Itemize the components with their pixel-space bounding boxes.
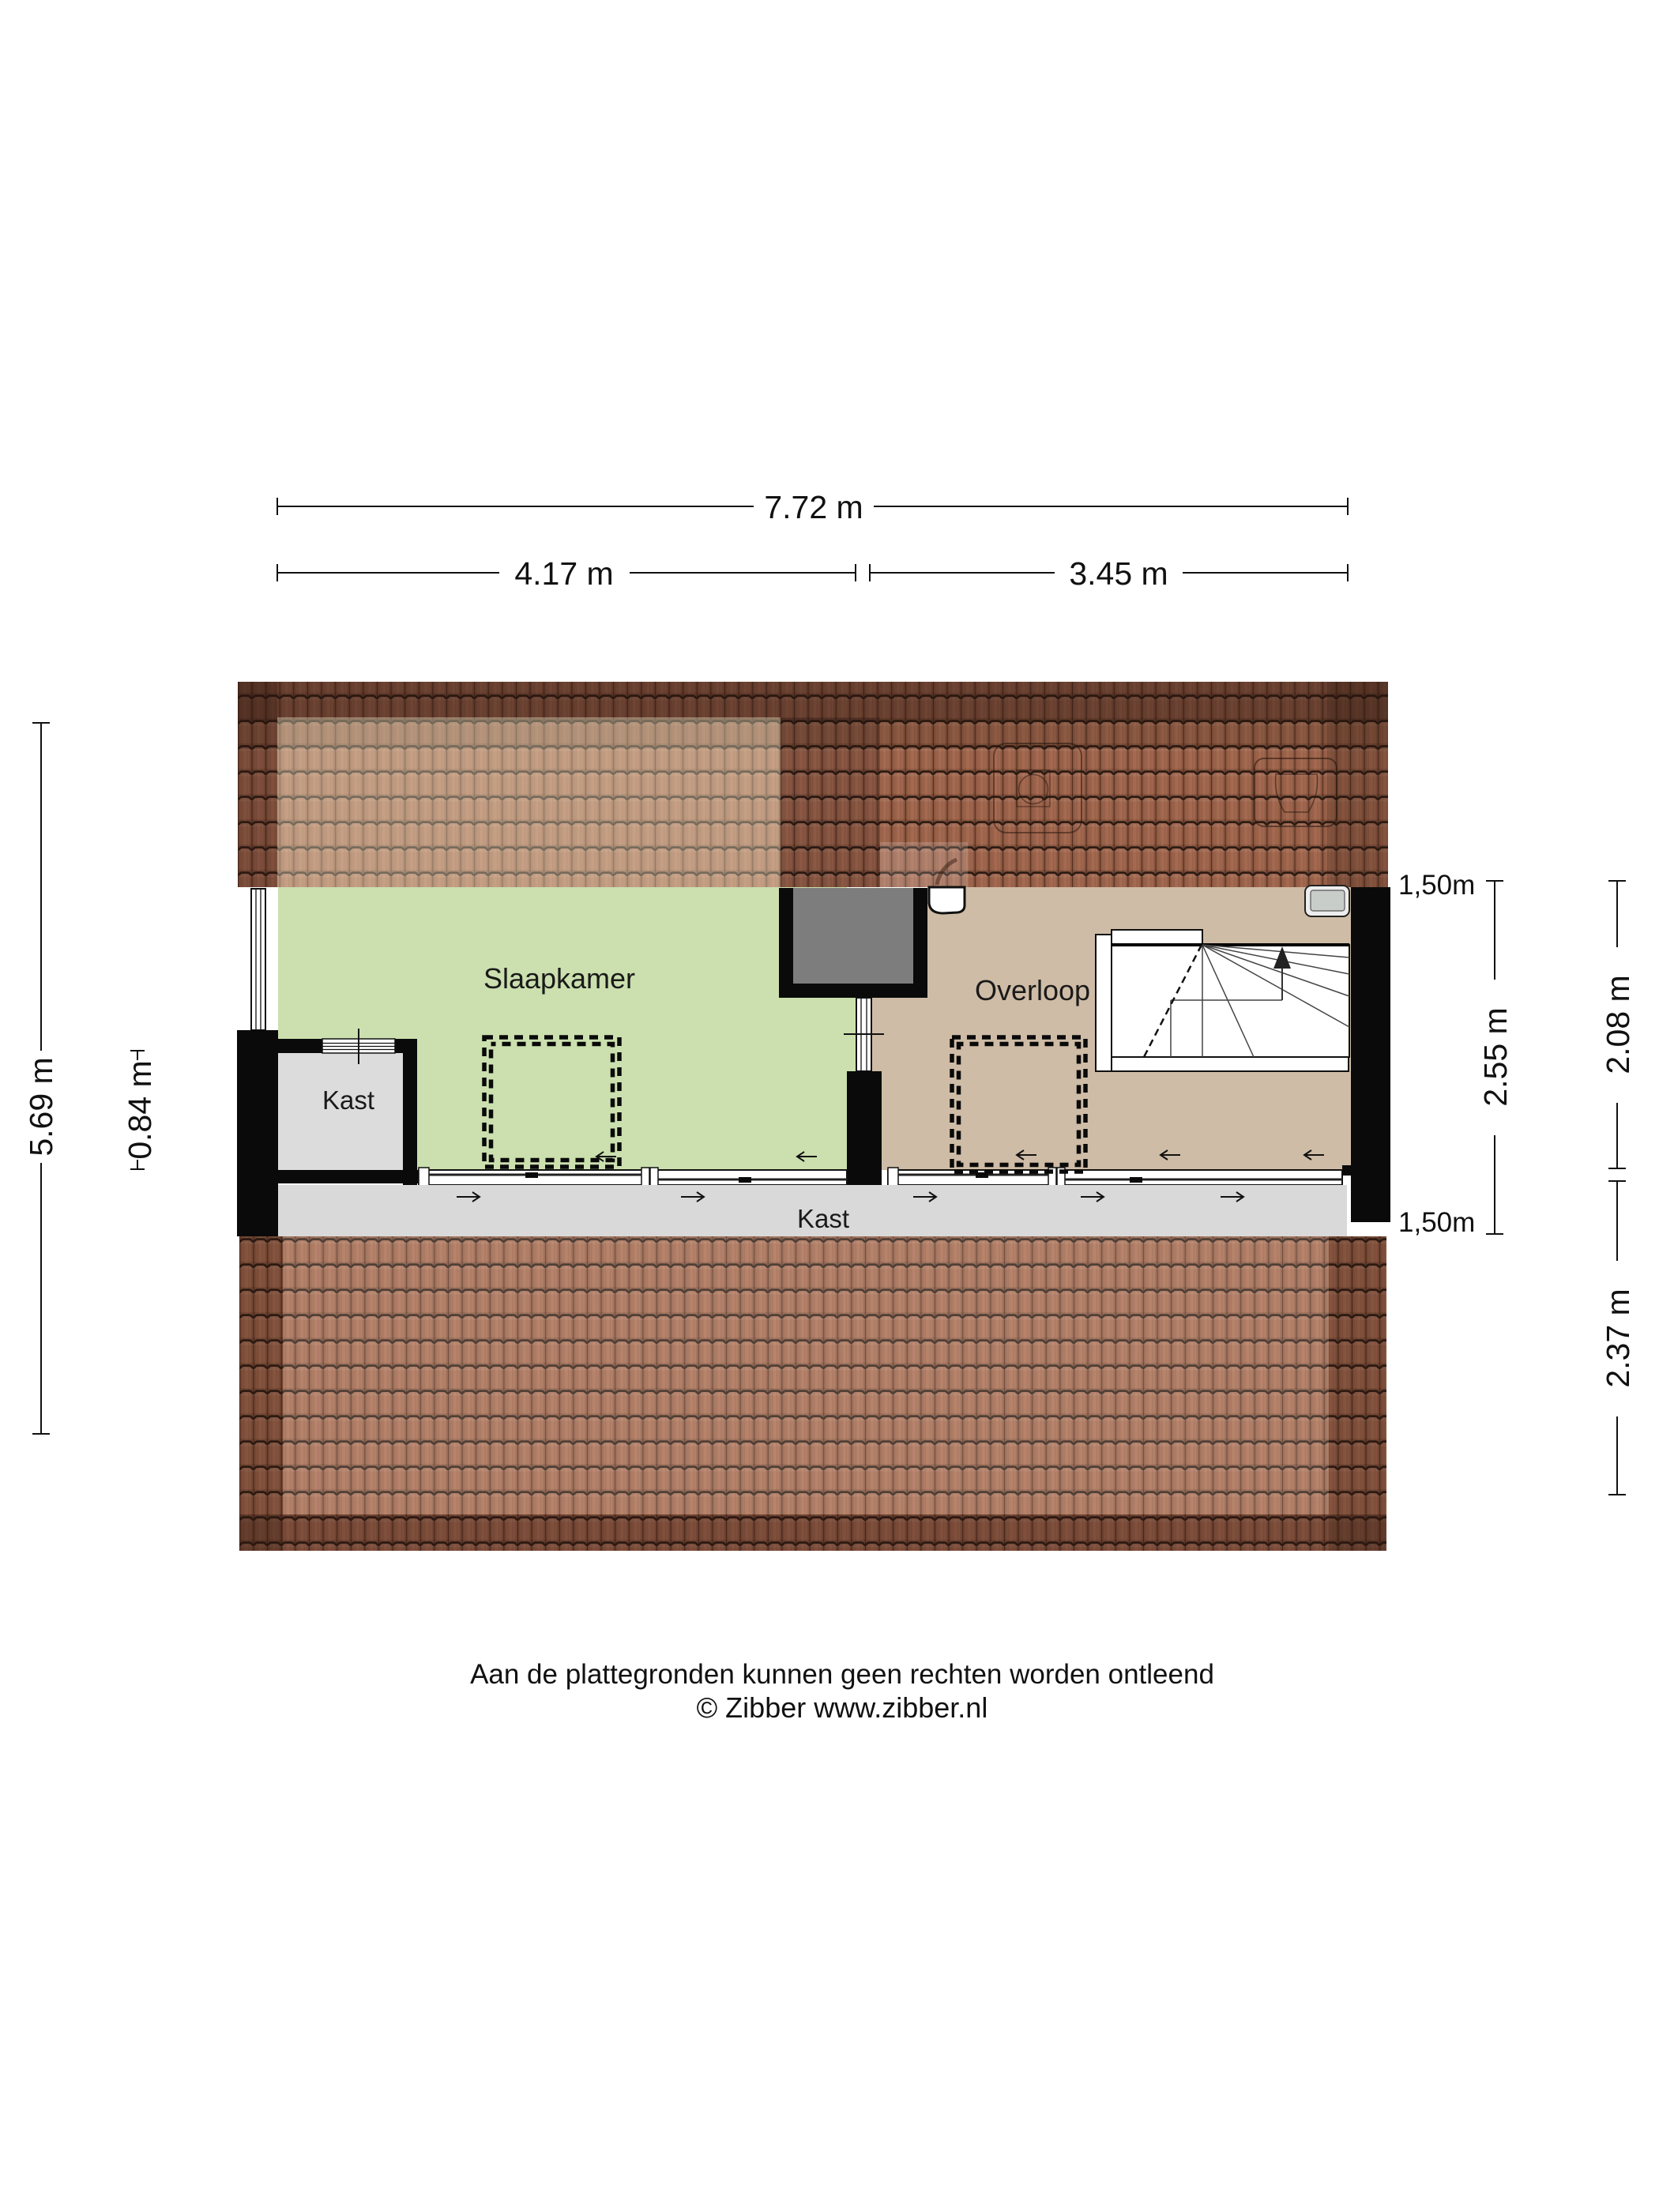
svg-text:Kast: Kast [797, 1204, 849, 1233]
svg-text:Slaapkamer: Slaapkamer [483, 962, 635, 995]
svg-text:1,50m: 1,50m [1398, 870, 1475, 901]
svg-text:2.55 m: 2.55 m [1477, 1007, 1514, 1106]
svg-text:Aan de plattegronden kunnen ge: Aan de plattegronden kunnen geen rechten… [470, 1659, 1214, 1690]
svg-text:1,50m: 1,50m [1398, 1207, 1475, 1238]
svg-text:3.45 m: 3.45 m [1069, 555, 1168, 592]
svg-text:2.08 m: 2.08 m [1600, 975, 1636, 1074]
svg-text:2.37 m: 2.37 m [1600, 1288, 1636, 1387]
svg-text:5.69 m: 5.69 m [23, 1057, 59, 1156]
svg-text:4.17 m: 4.17 m [514, 555, 613, 592]
svg-text:Kast: Kast [322, 1085, 374, 1115]
svg-text:Overloop: Overloop [975, 974, 1090, 1006]
svg-text:0.84 m: 0.84 m [122, 1060, 158, 1159]
svg-text:© Zibber www.zibber.nl: © Zibber www.zibber.nl [697, 1691, 988, 1724]
svg-text:7.72 m: 7.72 m [764, 489, 863, 525]
